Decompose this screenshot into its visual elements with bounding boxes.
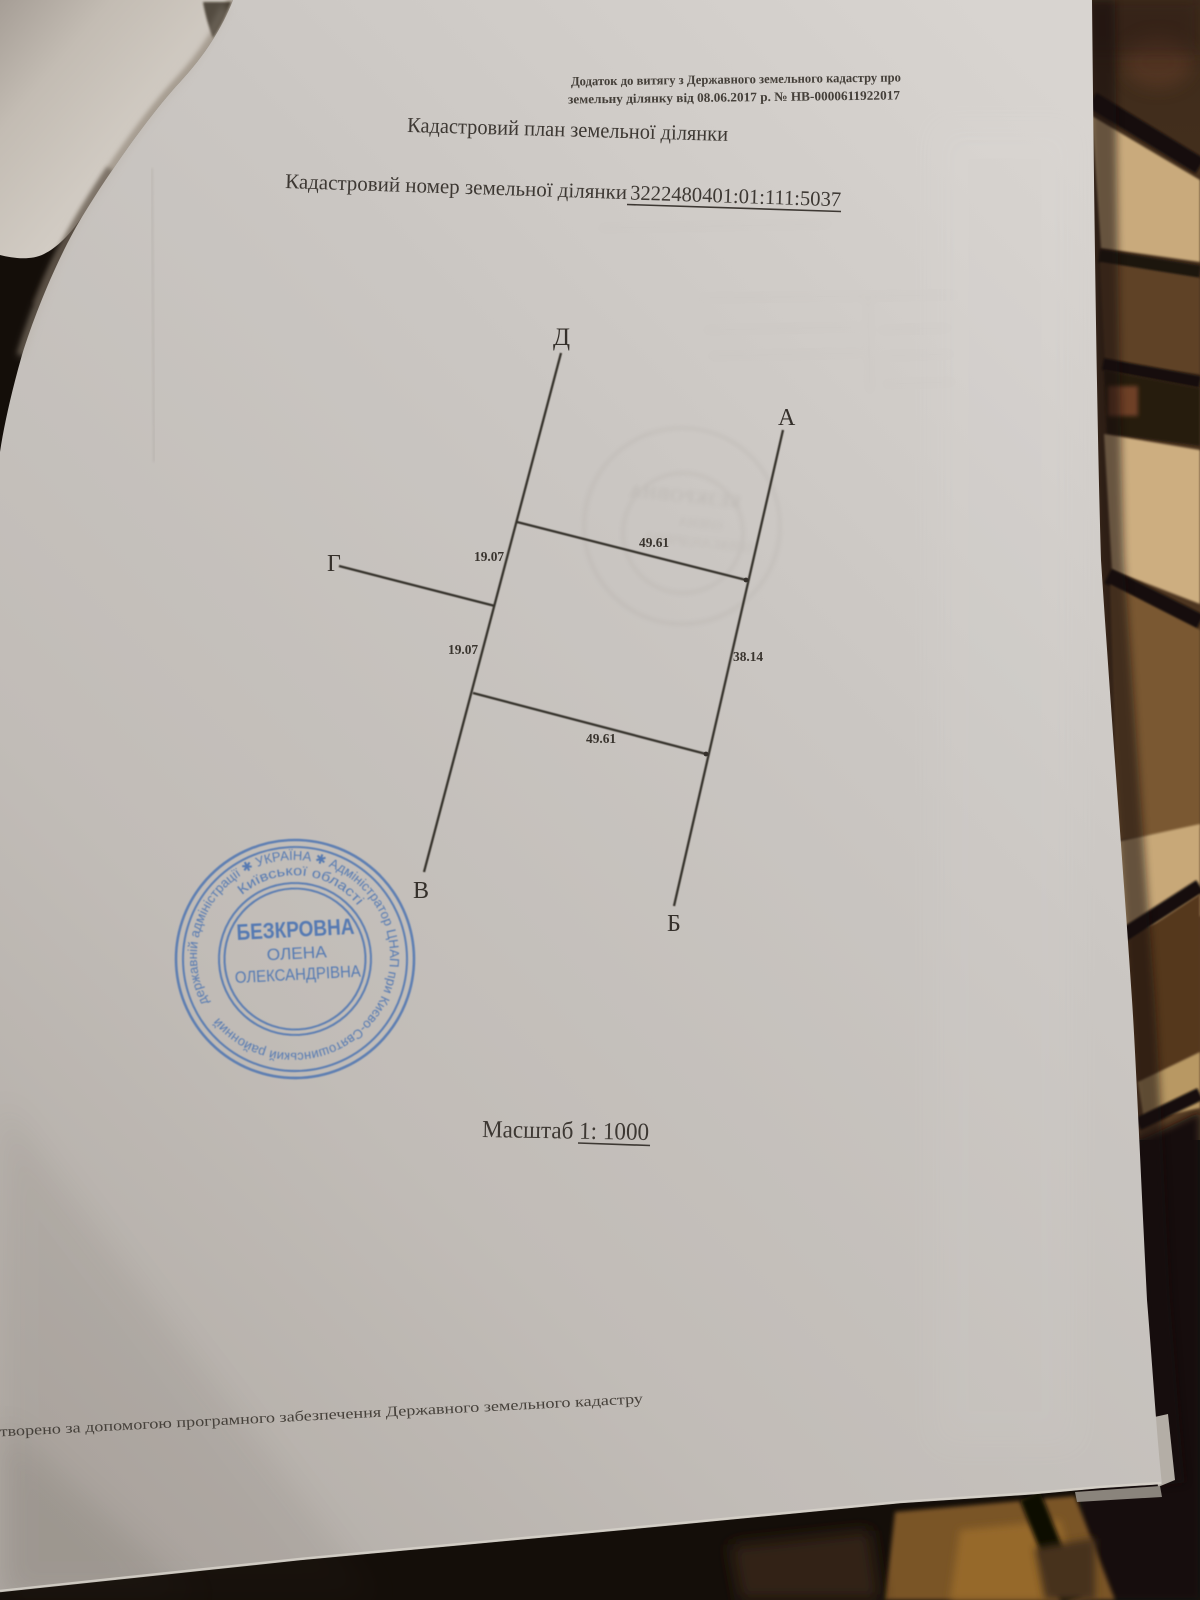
svg-text:ОЛЕНА: ОЛЕНА (266, 942, 328, 964)
svg-text:А: А (778, 405, 796, 431)
svg-text:19.07: 19.07 (474, 549, 504, 564)
svg-text:19.07: 19.07 (448, 642, 478, 657)
svg-text:49.61: 49.61 (639, 535, 669, 550)
svg-text:38.14: 38.14 (733, 649, 763, 664)
svg-text:В: В (413, 878, 429, 904)
svg-text:Б: Б (667, 911, 681, 937)
svg-text:49.61: 49.61 (586, 731, 616, 746)
svg-text:Г: Г (327, 551, 341, 577)
svg-text:Масштаб 1: 1000: Масштаб 1: 1000 (482, 1116, 649, 1146)
svg-text:Д: Д (553, 324, 570, 351)
